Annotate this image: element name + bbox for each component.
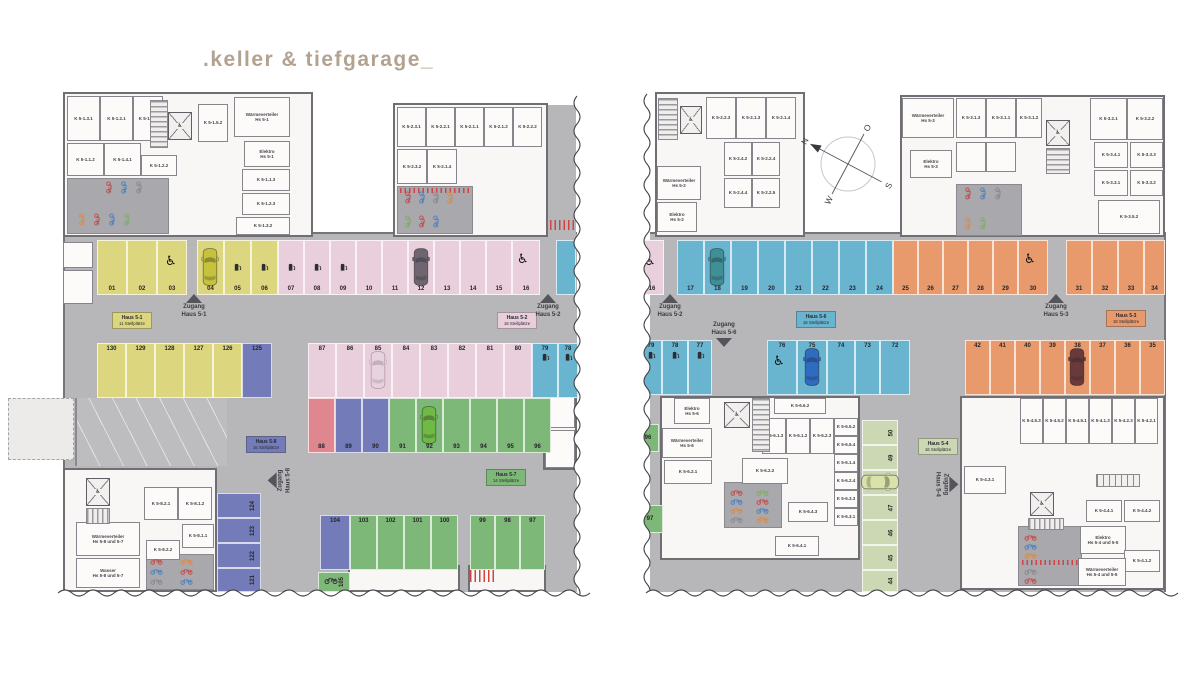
parking-stall: 30 [1018,240,1048,295]
parking-stall: 40 [1015,340,1040,395]
bicycle-icon [405,215,412,228]
stall-number: 73 [856,343,879,349]
stall-number: 93 [444,444,469,450]
entrance-arrow: ZugangHaus 5-2 [528,294,568,319]
parking-stall: 39 [1040,340,1065,395]
stall-number: 94 [471,444,496,450]
cellar-room: K 5-4.2.3 [1112,398,1135,444]
cellar-room: Wärmeverteiler Hs 5-8 und 5-7 [76,522,140,556]
wheelchair-icon: ♿ [1055,130,1061,136]
room-label: K 5-6.5.2 [837,424,856,429]
staircase [658,98,678,140]
wheelchair-icon: ♿ [1039,501,1045,507]
car-icon [200,246,220,288]
stall-number: 49 [889,454,895,461]
cellar-room [63,270,93,304]
access-label-line2: Haus 5-4 [934,472,941,497]
torn-edge-right-sheet-left [636,92,660,604]
stall-number: 99 [471,518,494,524]
bicycle-icon [124,213,131,226]
room-label: K 5-6.2.4 [837,478,856,483]
badge-count: 14 Stellplätze [490,478,522,483]
cellar-room: Elektro Hs 5-3 [910,150,952,178]
entrance-arrow: ZugangHaus 5-4 [934,464,959,504]
wheelchair-icon: ♿ [773,355,785,368]
room-label: K 5-4.2.3 [1114,418,1133,423]
bicycle-icon [1024,543,1037,550]
stall-number: 100 [432,518,457,524]
cellar-room: K 5-2.1.3 [736,97,766,139]
room-label: K 5-4.5.2 [1045,418,1064,423]
room-label: K 5-4.4.1 [1095,508,1114,513]
stall-number: 41 [991,343,1014,349]
room-label: Wärmeverteiler Hs 5-8 und 5-7 [92,534,125,545]
room-label: K 5-2.4.2 [729,156,748,161]
stall-number: 74 [828,343,854,349]
stall-number: 32 [1093,286,1117,292]
room-label: K 5-4.5.1 [1068,418,1087,423]
room-label: K 5-2.1.3 [742,115,761,120]
room-label: K 5-6.4.3 [799,509,818,514]
stall-number: 82 [449,346,475,352]
cellar-room: Elektro Hs 5-2 [657,202,697,232]
parking-stall: 26 [918,240,943,295]
cellar-room: K 5-2.2.3 [706,97,736,139]
cellar-room: Wärmeverteiler Hs 5-2 [657,166,701,200]
room-label: Elektro Hs 5-4 und 5-5 [1088,535,1119,546]
stall-number: 84 [393,346,419,352]
ev-charger-icon [287,262,296,272]
staircase [1046,148,1070,174]
elevator: ♿ [168,112,192,140]
bicycle-icon [322,577,340,584]
room-label: K 5-3.1.3 [962,115,981,120]
parking-stall: 123 [217,518,261,543]
elevator: ♿ [680,106,702,134]
compass-n: N [799,136,811,146]
cellar-room: K 5-8.1.2 [178,487,212,520]
stall-number: 39 [1041,343,1064,349]
access-label-line1: Zugang [183,304,205,311]
stall-number: 03 [158,286,186,292]
bicycle-icon [150,568,163,575]
parking-stall: 98 [495,515,520,570]
cellar-room: K 5-3.2.2 [1127,98,1163,140]
parking-stall: 20 [758,240,785,295]
room-label: K 5-1.1.3 [257,177,276,182]
parking-stall: 11 [382,240,408,295]
room-label: K 5-1.2.2 [150,163,169,168]
access-label-line2: Haus 5-6 [711,330,736,337]
stall-number: 81 [477,346,503,352]
entrance-arrow: ZugangHaus 5-8 [268,460,293,500]
cellar-room: Wärmeverteiler Hs 5-6 [662,428,712,458]
compass-w: W [822,194,835,206]
room-label: K 5-2.1.2 [489,124,508,129]
parking-stall: 25 [893,240,918,295]
parking-stall: 02 [127,240,157,295]
stall-number: 83 [421,346,447,352]
cellar-room: K 5-2.2.2 [513,107,542,147]
room-label: K 5-6.4.1 [788,543,807,548]
cellar-room: K 5-8.1.1 [182,524,214,548]
room-label: K 5-8.2.2 [154,547,173,552]
arrow-icon [662,294,678,303]
room-label: Wärmeverteiler Hs 5-1 [246,112,279,123]
cellar-room: K 5-3.2.1 [1090,98,1127,140]
room-label: K 5-2.2.3 [712,115,731,120]
stall-number: 86 [337,346,363,352]
car-icon [419,404,439,446]
parking-stall: 29 [993,240,1018,295]
house-badge: Haus 5-714 Stellplätze [486,469,526,486]
cellar-room: Elektro Hs 5-1 [244,141,290,167]
room-label: K 5-2.1.4 [433,164,452,169]
cellar-room: K 5-1.4.1 [104,143,141,176]
stall-number: 05 [225,286,250,292]
room-label: Elektro Hs 5-2 [669,212,684,223]
cellar-room: K 5-4.5.3 [1020,398,1043,444]
stall-number: 88 [309,444,334,450]
room-label: K 5-6.2.1 [679,469,698,474]
parking-stall: 95 [497,398,524,453]
ev-charger-icon [260,262,269,272]
bicycle-icon [756,507,769,514]
stall-number: 101 [405,518,430,524]
wheelchair-icon: ♿ [517,253,529,266]
north-arrow-icon [808,140,821,152]
parking-stall: 91 [389,398,416,453]
parking-stall: 80 [504,343,532,398]
room-label: Wärmeverteiler Hs 5-6 [671,438,704,449]
parking-stall: 33 [1118,240,1144,295]
room-label: K 5-6.3.3 [837,496,856,501]
stall-number: 29 [994,286,1017,292]
wheelchair-icon: ♿ [734,412,740,418]
parking-stall: 42 [965,340,990,395]
stall-number: 130 [98,346,125,352]
stall-number: 30 [1019,286,1047,292]
access-label-line2: Haus 5-8 [286,468,293,493]
parking-stall: 47 [862,495,898,520]
stall-number: 127 [185,346,212,352]
parking-stall: 46 [862,520,898,545]
room-label: K 5-2.2.2 [518,124,537,129]
parking-stall: 01 [97,240,127,295]
entrance-arrow: ZugangHaus 5-1 [174,294,214,319]
house-badge: Haus 5-816 Stellplätze [246,436,286,453]
cellar-room [63,242,93,268]
room-label: K 5-3.1.2 [1020,115,1039,120]
compass-o: O [861,122,873,133]
stall-number: 23 [840,286,865,292]
room-label: Wärmeverteiler Hs 5-3 [912,113,945,124]
room-label: K 5-2.1.4 [772,115,791,120]
parking-stall: 84 [392,343,420,398]
room-label: Elektro Hs 5-3 [923,159,938,170]
room-label: K 5-1.2.3 [257,201,276,206]
stall-number: 103 [351,518,376,524]
parking-stall: 74 [827,340,855,395]
elevator: ♿ [1030,492,1054,516]
parking-stall: 103 [350,515,377,570]
parking-stall: 10 [356,240,382,295]
parking-stall: 122 [217,543,261,568]
parking-stall: 73 [855,340,880,395]
bicycle-icon [121,181,128,194]
room-label: K 5-8.1.1 [189,533,208,538]
access-label-line1: Zugang [1045,304,1067,311]
access-label-line2: Haus 5-2 [535,312,560,319]
room-label: K 5-4.2.1 [1137,418,1156,423]
parking-stall: 93 [443,398,470,453]
parking-stall: 35 [1140,340,1165,395]
house-badge: Haus 5-616 Stellplätze [796,311,836,328]
cellar-room: K 5-2.2.4 [752,142,780,176]
stall-number: 27 [944,286,967,292]
compass-s: S [883,180,895,190]
bicycle-icon [405,191,412,204]
cellar-room: K 5-4.1.3 [1089,398,1112,444]
room-label: K 5-4.5.3 [1022,418,1041,423]
wheelchair-icon: ♿ [165,255,177,268]
stall-number: 129 [127,346,154,352]
cellar-room: K 5-3.1.1 [986,98,1016,138]
room-label: K 5-6.2.2 [756,468,775,473]
wheelchair-icon: ♿ [177,123,183,129]
stall-number: 06 [252,286,277,292]
room-label: K 5-6.1.4 [837,460,856,465]
room-label: K 5-1.3.1 [74,116,93,121]
bicycle-icon [79,213,86,226]
cellar-room: K 5-6.5.4 [834,436,858,454]
cellar-room: K 5-1.5.2 [198,104,228,142]
room-label: Wärmeverteiler Hs 5-4 und 5-5 [1086,567,1119,578]
ev-charger-icon [671,350,680,360]
cellar-room: K 5-1.3.2 [236,217,290,235]
parking-stall: 82 [448,343,476,398]
room-label: K 5-2.4.4 [729,190,748,195]
cellar-room: K 5-3.5.2 [1098,200,1160,234]
ev-charger-icon [541,352,550,362]
bicycle-icon [180,568,193,575]
bicycle-icon [109,213,116,226]
cellar-room: Elektro Hs 5-6 [674,398,710,424]
stall-number: 80 [505,346,531,352]
badge-count: 16 Stellplätze [800,320,832,325]
cellar-room: K 5-2.3.2 [397,149,427,184]
staircase [86,508,110,524]
stall-number: 72 [881,343,909,349]
cellar-room [956,142,986,172]
parking-stall: 102 [377,515,404,570]
room-label: K 5-6.5.4 [837,442,856,447]
room-label: K 5-1.5.2 [204,120,223,125]
cellar-room: Wärmeverteiler Hs 5-1 [234,97,290,137]
bicycle-icon [1024,577,1037,584]
cellar-room: K 5-2.2.5 [752,178,780,208]
room-label: K 5-6.1.2 [789,433,808,438]
parking-stall: 100 [431,515,458,570]
room-label: K 5-4.3.1 [976,477,995,482]
staircase [150,100,168,148]
parking-stall: 88 [308,398,335,453]
cellar-room: K 5-1.1.2 [67,143,104,176]
stall-number: 24 [867,286,892,292]
parking-stall: 104 [320,515,350,570]
parking-stall: 37 [1090,340,1115,395]
cellar-room: K 5-8.2.2 [146,540,180,560]
floor-area [1022,560,1078,565]
cellar-room: K 5-2.2.1 [426,107,455,147]
parking-stall: 96 [524,398,551,453]
room-label: K 5-2.2.1 [431,124,450,129]
floor-area [470,570,496,582]
parking-stall: 86 [336,343,364,398]
cellar-room: K 5-2.1.4 [427,149,457,184]
floor-area [1096,474,1140,487]
cellar-room: Wärmeverteiler Hs 5-3 [902,98,954,138]
cellar-room: K 5-2.1.4 [766,97,796,139]
cellar-room: K 5-1.2.1 [100,96,133,141]
room-label: K 5-3.5.2 [1120,214,1139,219]
stall-number: 21 [786,286,811,292]
cellar-room: K 5-1.1.3 [242,169,290,191]
parking-stall: 87 [308,343,336,398]
access-label-line2: Haus 5-3 [1043,312,1068,319]
stall-number: 123 [250,525,256,535]
cellar-room: Elektro Hs 5-4 und 5-5 [1080,526,1126,554]
room-label: K 5-2.2.4 [757,156,776,161]
bicycle-icon [1024,552,1037,559]
access-label-line2: Haus 5-2 [657,312,682,319]
house-badge: Haus 5-416 Stellplätze [918,438,958,455]
car-icon [1067,346,1087,388]
entrance-arrow: ZugangHaus 5-6 [704,322,744,347]
cellar-room: K 5-6.2.3 [810,418,834,454]
cellar-room: K 5-2.4.2 [724,142,752,176]
parking-stall: 89 [335,398,362,453]
cellar-room: K 5-6.3.1 [834,508,858,526]
bicycle-icon [980,217,987,230]
arrow-icon [186,294,202,303]
house-badge: Haus 5-111 Stellplätze [112,312,152,329]
stall-number: 19 [732,286,757,292]
cellar-room: K 5-6.2.1 [664,460,712,484]
bicycle-icon [106,181,113,194]
cellar-room: K 5-3.1.2 [1016,98,1042,138]
stall-number: 35 [1141,343,1164,349]
stall-number: 46 [889,529,895,536]
cellar-room: K 5-6.4.1 [775,536,819,556]
bicycle-icon [94,213,101,226]
floorplan-canvas: .keller & tiefgarage_ K 5-1.3.1K 5-1.2.1… [0,0,1200,675]
car-icon [411,246,431,288]
room-label: K 5-1.3.2 [254,223,273,228]
cellar-room: K 5-1.3.1 [67,96,100,141]
room-label: Elektro Hs 5-6 [684,406,699,417]
bicycle-icon [180,558,193,565]
cellar-room: K 5-3.4.1 [1094,142,1128,168]
bicycle-icon [995,187,1002,200]
access-label-line1: Zugang [278,470,285,492]
bicycle-icon [965,217,972,230]
room-label: K 5-3.3.2 [1137,180,1156,185]
bicycle-icon [756,489,769,496]
bicycle-icon [136,181,143,194]
parking-stall: 22 [812,240,839,295]
parking-stall: 81 [476,343,504,398]
badge-count: 16 Stellplätze [922,447,954,452]
cellar-room: K 5-3.1.3 [956,98,986,138]
cellar-room: K 5-3.3.1 [1094,170,1128,196]
cellar-room: K 5-2.3.1 [397,107,426,147]
bicycle-icon [433,191,440,204]
parking-stall: 97 [520,515,545,570]
stall-number: 25 [894,286,917,292]
wheelchair-icon: ♿ [1024,253,1036,266]
stall-number: 07 [279,286,303,292]
room-label: K 5-8.2.1 [152,501,171,506]
cellar-room: K 5-4.5.2 [1043,398,1066,444]
room-label: K 5-2.3.1 [402,124,421,129]
cellar-room: K 5-3.3.2 [1130,170,1163,196]
car-icon [859,472,901,492]
parking-stall: 19 [731,240,758,295]
car-icon [368,349,388,391]
parking-stall: 129 [126,343,155,398]
parking-stall: 49 [862,445,898,470]
cellar-room: K 5-4.4.2 [1124,500,1160,522]
stall-number: 96 [525,444,550,450]
parking-stall: 41 [990,340,1015,395]
room-label: K 5-3.1.1 [992,115,1011,120]
ev-charger-icon [696,350,705,360]
room-label: K 5-4.1.2 [1133,558,1152,563]
parking-stall: 99 [470,515,495,570]
stall-number: 50 [889,429,895,436]
bicycle-icon [730,498,743,505]
ev-charger-icon [313,262,322,272]
parking-stall: 28 [968,240,993,295]
parking-stall: 23 [839,240,866,295]
room-label: K 5-3.3.1 [1102,180,1121,185]
room-label: K 5-6.3.1 [837,514,856,519]
stall-number: 15 [487,286,511,292]
wheelchair-icon: ♿ [95,489,101,495]
elevator: ♿ [1046,120,1070,146]
stall-number: 11 [383,286,407,292]
bicycle-icon [150,558,163,565]
stall-number: 16 [513,286,539,292]
parking-stall: 72 [880,340,910,395]
stall-number: 128 [156,346,183,352]
cellar-room: K 5-4.3.1 [964,466,1006,494]
parking-stall: 31 [1066,240,1092,295]
cellar-room: K 5-1.2.3 [242,193,290,215]
parking-stall: 125 [242,343,272,398]
staircase [1028,518,1064,530]
stall-number: 89 [336,444,361,450]
room-label: Wasser Hs 5-8 und 5-7 [93,568,124,579]
room-label: K 5-6.2.3 [813,433,832,438]
room-label: K 5-2.3.2 [403,164,422,169]
entrance-arrow: ZugangHaus 5-3 [1036,294,1076,319]
room-label: Elektro Hs 5-1 [259,149,274,160]
bicycle-icon [730,489,743,496]
cellar-room: K 5-3.3.3 [1130,142,1163,168]
badge-count: 11 Stellplätze [116,321,148,326]
